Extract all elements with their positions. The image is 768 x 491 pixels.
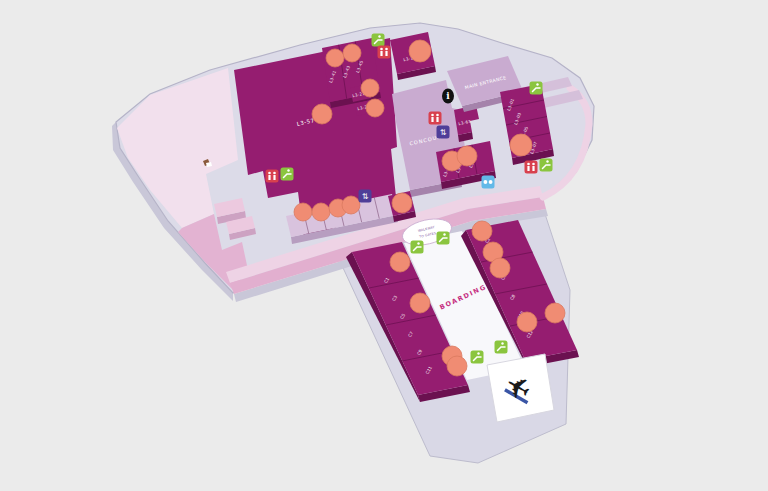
shop-marker[interactable] xyxy=(392,193,412,213)
shop-marker[interactable] xyxy=(447,356,467,376)
shop-marker[interactable] xyxy=(366,99,384,117)
toilets-icon[interactable] xyxy=(378,46,391,59)
shop-marker[interactable] xyxy=(390,252,410,272)
lift-icon[interactable]: ⇅ xyxy=(437,126,450,139)
phones-icon[interactable] xyxy=(482,176,495,189)
escalator-icon[interactable] xyxy=(471,351,484,364)
shop-marker[interactable] xyxy=(361,79,379,97)
shop-marker[interactable] xyxy=(312,104,332,124)
shop-marker[interactable] xyxy=(326,49,344,67)
escalator-icon[interactable] xyxy=(372,34,385,47)
shop-marker[interactable] xyxy=(472,221,492,241)
info-icon[interactable]: i xyxy=(442,89,454,104)
shop-marker[interactable] xyxy=(457,146,477,166)
escalator-icon[interactable] xyxy=(437,232,450,245)
shop-marker[interactable] xyxy=(409,40,431,62)
shop-marker[interactable] xyxy=(294,203,312,221)
shop-marker[interactable] xyxy=(517,312,537,332)
shop-marker[interactable] xyxy=(312,203,330,221)
shop-marker[interactable] xyxy=(343,44,361,62)
escalator-icon[interactable] xyxy=(530,82,543,95)
shop-marker[interactable] xyxy=(490,258,510,278)
shop-marker[interactable] xyxy=(510,134,532,156)
toilets-icon[interactable] xyxy=(525,161,538,174)
toilets-icon[interactable] xyxy=(266,170,279,183)
svg-text:⇅: ⇅ xyxy=(362,192,369,201)
shop-marker[interactable] xyxy=(410,293,430,313)
escalator-icon[interactable] xyxy=(281,168,294,181)
toilets-icon[interactable] xyxy=(429,112,442,125)
terminal-map: L3-57 CONCOURSE MAIN ENTRANCE BOA xyxy=(0,0,768,491)
escalator-icon[interactable] xyxy=(411,241,424,254)
map-canvas[interactable]: L3-57 CONCOURSE MAIN ENTRANCE BOA xyxy=(0,0,768,491)
escalator-icon[interactable] xyxy=(495,341,508,354)
svg-text:i: i xyxy=(446,91,450,101)
shop-marker[interactable] xyxy=(342,196,360,214)
escalator-icon[interactable] xyxy=(540,159,553,172)
lift-icon[interactable]: ⇅ xyxy=(359,190,372,203)
shop-marker[interactable] xyxy=(545,303,565,323)
svg-text:⇅: ⇅ xyxy=(440,128,447,137)
